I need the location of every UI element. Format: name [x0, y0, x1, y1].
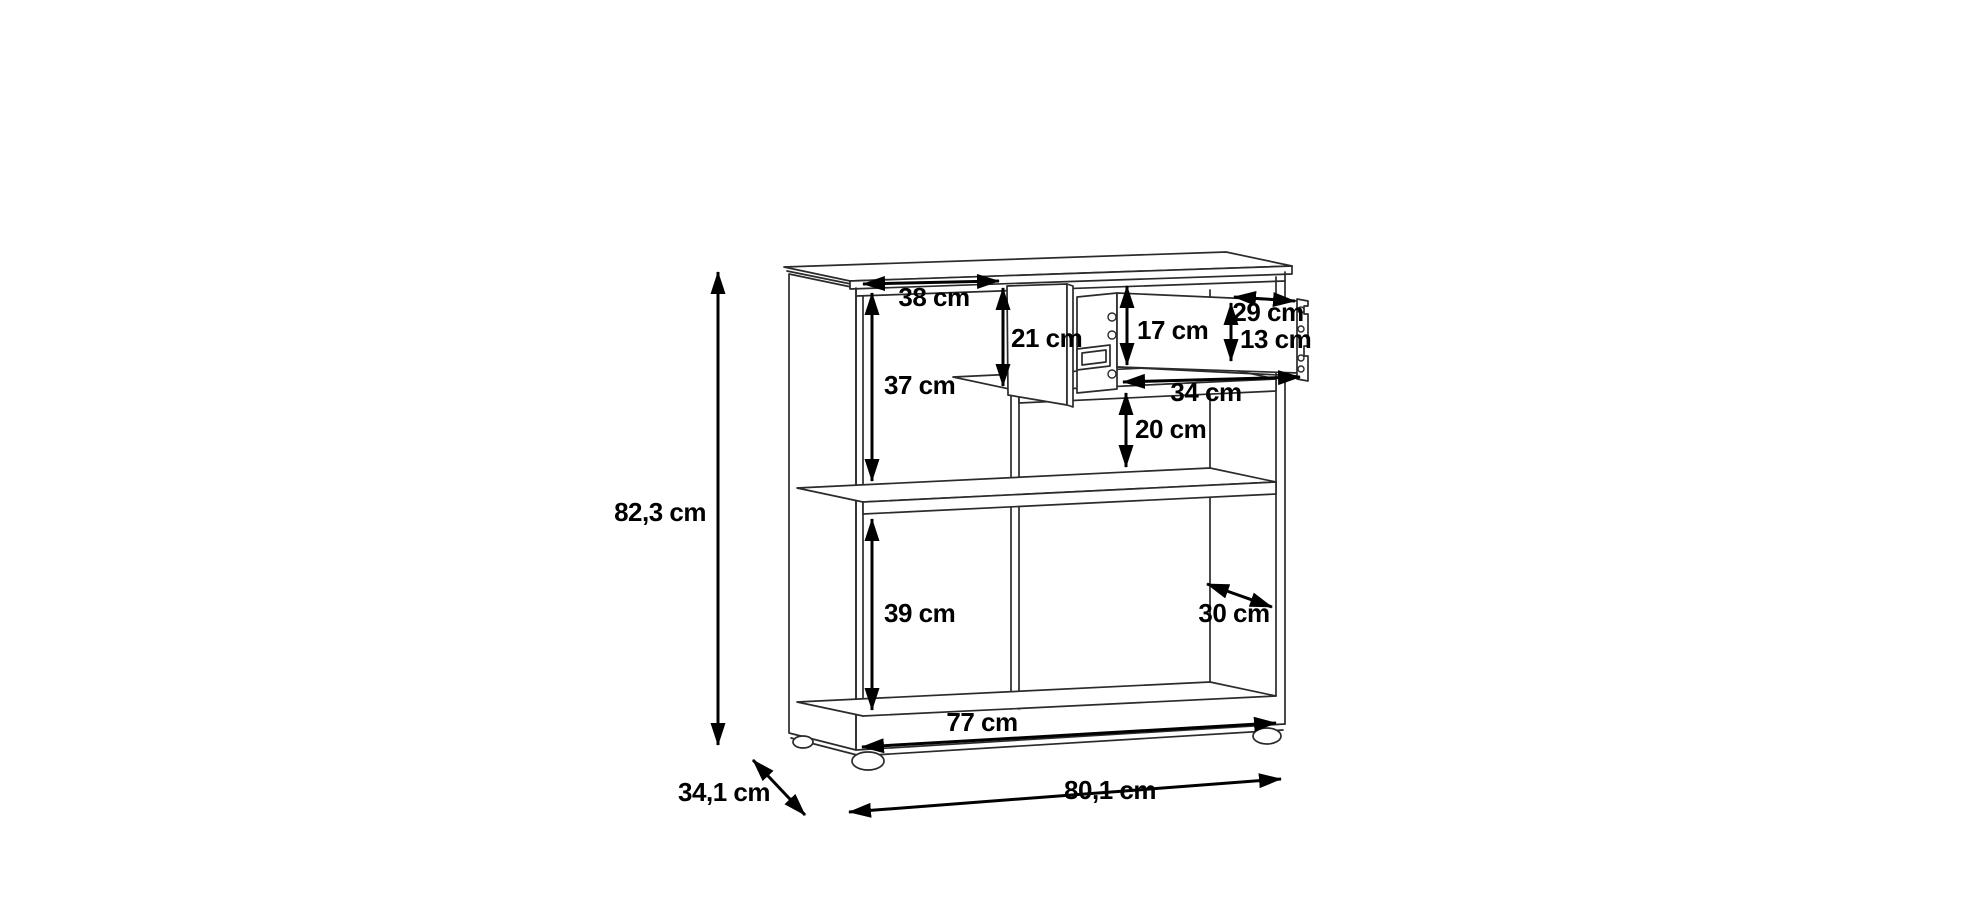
foot-back-left [793, 736, 813, 748]
rail-screw [1108, 313, 1116, 321]
dim-label-drawer-opening-height: 17 cm [1137, 315, 1208, 345]
dim-label-left-compartment-width: 38 cm [898, 282, 969, 312]
dim-label-base-width: 77 cm [946, 707, 1017, 737]
diagram-canvas: 82,3 cm 38 cm 37 cm 21 cm 17 cm 29 cm 13… [0, 0, 1965, 912]
dim-label-door-height: 21 cm [1011, 323, 1082, 353]
dim-label-left-compartment-height: 37 cm [884, 370, 955, 400]
drawer-front-screw [1298, 355, 1304, 361]
front-bottom-edge [856, 724, 1285, 750]
dim-label-lower-compartment-height: 39 cm [884, 598, 955, 628]
dim-label-overall-width: 80,1 cm [1064, 775, 1156, 805]
dim-label-drawer-depth: 34 cm [1170, 377, 1241, 407]
furniture-dimension-drawing: 82,3 cm 38 cm 37 cm 21 cm 17 cm 29 cm 13… [0, 0, 1965, 912]
rail-handle-inner [1082, 350, 1106, 365]
dim-label-drawer-front-width: 29 cm [1232, 297, 1303, 327]
left-side-panel [789, 274, 856, 750]
dim-label-overall-height: 82,3 cm [614, 497, 706, 527]
bottom-board-surface [797, 682, 1276, 716]
rail-screw [1108, 370, 1116, 378]
dim-label-gap-below-drawer: 20 cm [1135, 414, 1206, 444]
foot-front-left [852, 752, 884, 770]
dim-label-drawer-front-height: 13 cm [1240, 324, 1311, 354]
drawer-front-screw [1298, 366, 1304, 372]
dim-label-overall-depth: 34,1 cm [678, 777, 770, 807]
dim-label-interior-depth: 30 cm [1198, 598, 1269, 628]
rail-screw [1108, 331, 1116, 339]
foot-front-right [1253, 728, 1281, 744]
